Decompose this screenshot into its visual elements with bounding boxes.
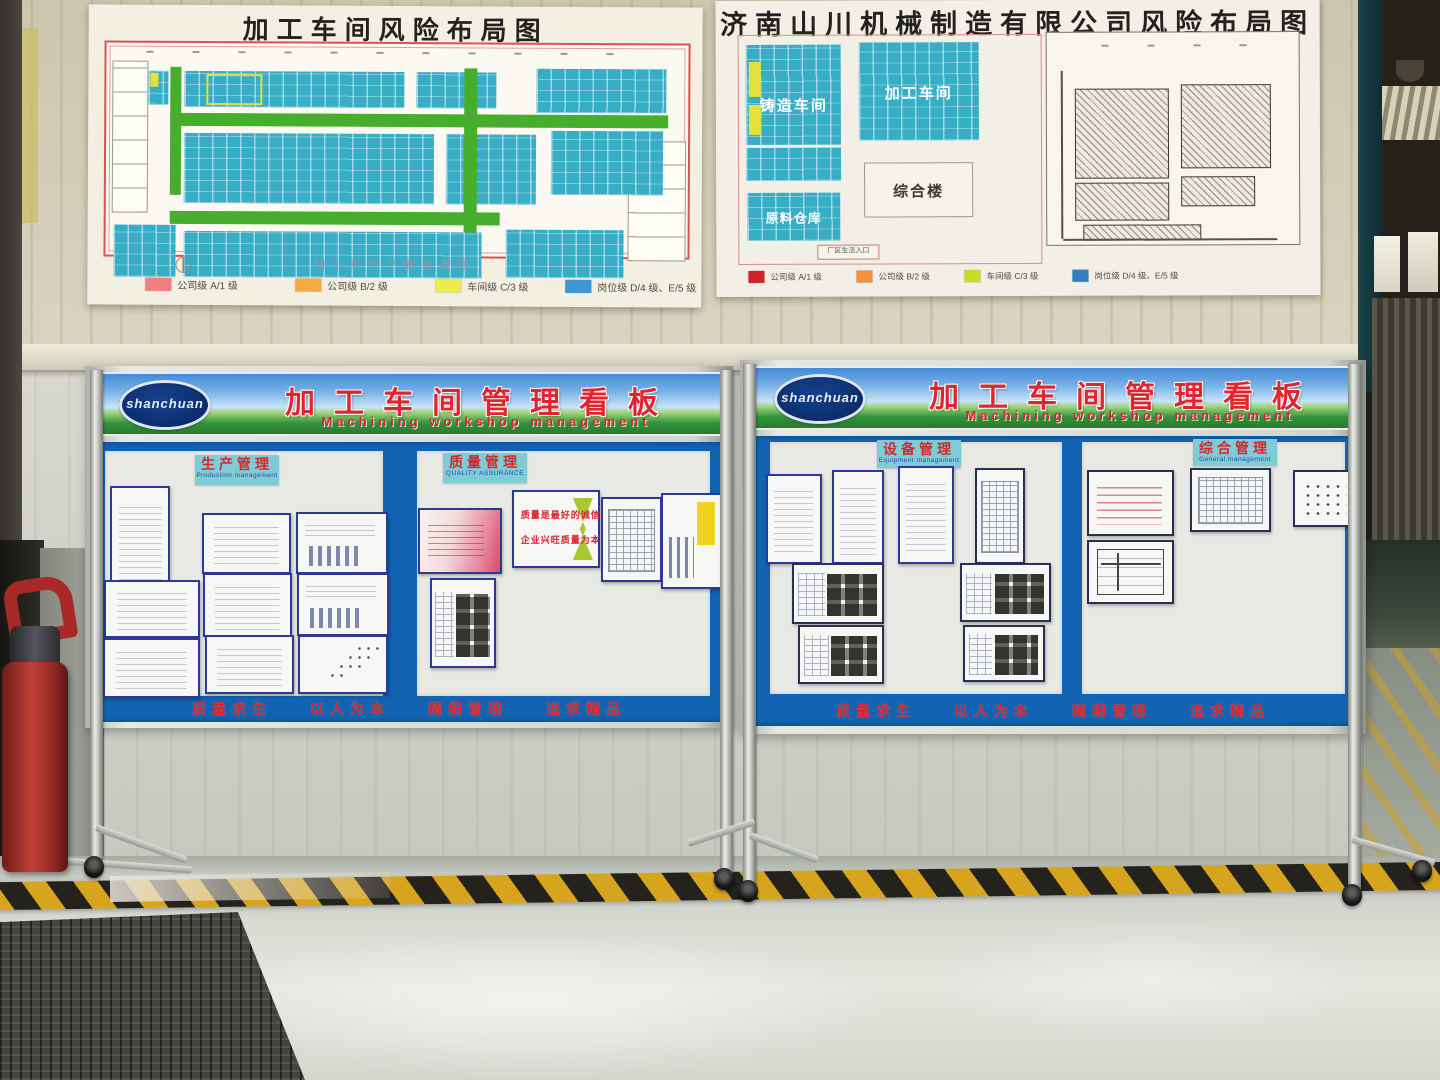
map-yellow-cell xyxy=(150,73,158,87)
slogan-phrase: 精细管理 xyxy=(1072,701,1152,721)
machine-silhouette xyxy=(1366,540,1440,652)
document-grid-table xyxy=(1190,468,1271,532)
siteplan-building xyxy=(1181,176,1255,206)
map-road xyxy=(170,113,668,129)
block-warehouse: 原料仓库 xyxy=(747,193,840,241)
document-certificate xyxy=(1087,470,1174,536)
block-divider xyxy=(746,145,841,148)
legend-label: 车间级 C/3 级 xyxy=(986,270,1038,282)
document-scatter-chart xyxy=(298,635,388,694)
section-label-en: QUALITY ASSURANCE xyxy=(443,470,527,478)
board-banner: shanchuan 加工车间管理看板 Machining workshop ma… xyxy=(746,366,1360,430)
striped-column xyxy=(1372,298,1440,542)
caster-wheel xyxy=(1412,860,1432,882)
workshop-photo: 加工车间风险布局图 加工车间平面布置图 公司级 A/1 级 xyxy=(0,0,1440,1080)
section-label-cn: 质量管理 xyxy=(443,455,527,470)
stand-leg xyxy=(1348,364,1361,892)
board-slogan: 质量求生 以人为本 精细管理 追求精品 xyxy=(101,699,717,719)
stand-leg xyxy=(743,364,756,886)
caster-wheel xyxy=(1342,884,1362,906)
document xyxy=(103,638,200,698)
legend-item: 岗位级 D/4 级、E/5 级 xyxy=(1072,269,1178,281)
window xyxy=(1374,236,1400,292)
map-rooms-left xyxy=(112,61,149,213)
document-record-sheet xyxy=(601,497,662,582)
slogan-phrase: 精细管理 xyxy=(428,699,508,719)
legend-swatch xyxy=(145,278,171,291)
map-caption: 加工车间平面布置图 xyxy=(87,254,701,274)
legend-label: 岗位级 D/4 级、E/5 级 xyxy=(597,279,696,295)
legend-item: 公司级 B/2 级 xyxy=(295,277,388,292)
legend-swatch xyxy=(856,271,872,283)
document-bar-chart xyxy=(297,573,389,636)
legend-item: 车间级 C/3 级 xyxy=(435,278,528,293)
legend-label: 公司级 B/2 级 xyxy=(327,278,388,293)
block-entrance: 厂区生活入口 xyxy=(817,244,879,259)
document-quality-slogan: 质量是最好的诚信 企业兴旺质量为本 xyxy=(512,490,600,568)
document xyxy=(202,513,291,574)
block-label: 厂区生活入口 xyxy=(818,245,878,257)
section-label-equipment: 设备管理 Equipment management xyxy=(877,440,961,468)
slogan-phrase: 以人为本 xyxy=(310,699,390,719)
map-block xyxy=(416,72,496,108)
quality-slogan-line: 企业兴旺质量为本 xyxy=(521,533,601,546)
section-label-en: Equipment management xyxy=(877,457,961,465)
hazard-reflection xyxy=(110,872,390,902)
document xyxy=(766,474,822,564)
legend-label: 岗位级 D/4 级、E/5 级 xyxy=(1094,269,1178,281)
block-machining: 加工车间 xyxy=(859,42,979,140)
lamp xyxy=(1396,60,1424,82)
section-label-en: General management xyxy=(1193,456,1277,464)
legend-item: 公司级 A/1 级 xyxy=(145,277,238,292)
legend-item: 公司级 A/1 级 xyxy=(748,271,822,283)
stand-leg xyxy=(720,370,733,876)
siteplan-ticks xyxy=(1102,44,1252,47)
document-list xyxy=(975,468,1025,564)
logo-text: shanchuan xyxy=(774,390,866,405)
document-photo-sheet xyxy=(963,625,1045,682)
logo-text: shanchuan xyxy=(119,396,211,411)
quality-slogan-line: 质量是最好的诚信 xyxy=(521,508,601,521)
wall-corner-shadow xyxy=(0,0,22,560)
map-road xyxy=(170,67,182,195)
document-layout-drawing xyxy=(1087,540,1174,604)
wall-yellow-strip xyxy=(22,28,38,223)
legend-label: 公司级 B/2 级 xyxy=(878,270,930,282)
document-photo-sheet xyxy=(792,563,884,624)
section-label-cn: 生产管理 xyxy=(195,457,279,472)
dimension-ticks xyxy=(147,51,647,56)
yellow-strip xyxy=(749,62,761,97)
banner-title-en: Machining workshop management xyxy=(251,414,721,429)
workshop-floor-marks xyxy=(1362,648,1440,874)
document xyxy=(104,580,200,638)
block-office: 综合楼 xyxy=(864,162,973,217)
green-ribbon xyxy=(573,498,593,560)
document xyxy=(205,635,294,694)
document-quality-notice xyxy=(418,508,502,574)
shanchuan-logo: shanchuan xyxy=(774,374,866,424)
floor-reflection xyxy=(940,920,1360,1040)
slogan-phrase: 以人为本 xyxy=(954,701,1034,721)
legend-swatch xyxy=(748,271,764,283)
map-block xyxy=(551,131,663,196)
legend-swatch xyxy=(435,279,461,292)
block-label: 铸造车间 xyxy=(760,95,828,116)
map-block xyxy=(184,133,434,204)
slogan-phrase: 质量求生 xyxy=(192,699,272,719)
block-label: 综合楼 xyxy=(865,180,972,201)
risk-layout-poster-company: 济南山川机械制造有限公司风险布局图 铸造车间 加工车间 综合楼 原料仓库 厂区生… xyxy=(715,0,1320,297)
legend-swatch xyxy=(565,280,591,293)
block-casting: 铸造车间 xyxy=(746,45,841,181)
document xyxy=(898,466,954,564)
caster-wheel xyxy=(738,880,758,902)
section-label-quality: 质量管理 QUALITY ASSURANCE xyxy=(443,453,527,483)
siteplan-road xyxy=(1061,71,1063,239)
section-label-cn: 设备管理 xyxy=(877,442,961,457)
document xyxy=(832,470,884,564)
map-road xyxy=(170,211,500,226)
document xyxy=(203,573,292,637)
siteplan-building xyxy=(1075,182,1169,220)
legend-swatch xyxy=(295,278,321,291)
document-photo-sheet xyxy=(960,563,1051,622)
floorplan-map xyxy=(103,40,690,259)
slogan-phrase: 质量求生 xyxy=(836,701,916,721)
legend-label: 公司级 A/1 级 xyxy=(177,277,238,292)
document-bar-chart xyxy=(296,512,388,574)
section-label-production: 生产管理 Production management xyxy=(195,455,279,485)
board-banner: shanchuan 加工车间管理看板 Machining workshop ma… xyxy=(91,372,727,436)
site-plan-drawing xyxy=(1046,31,1301,246)
kanban-board-right: shanchuan 加工车间管理看板 Machining workshop ma… xyxy=(740,360,1366,734)
legend-label: 公司级 A/1 级 xyxy=(770,271,822,283)
legend-label: 车间级 C/3 级 xyxy=(467,278,528,293)
window xyxy=(1408,232,1438,292)
legend-swatch xyxy=(964,270,980,282)
siteplan-building xyxy=(1075,88,1169,178)
document-chart-highlight xyxy=(661,493,724,589)
roof-band xyxy=(1382,86,1440,140)
legend-swatch xyxy=(1072,270,1088,282)
block-label: 原料仓库 xyxy=(747,208,840,227)
fire-extinguisher xyxy=(2,662,68,872)
section-label-general: 综合管理 General management xyxy=(1193,439,1277,466)
slogan-phrase: 追求精品 xyxy=(546,699,626,719)
document-photo-sheet xyxy=(798,625,884,684)
map-block xyxy=(536,69,666,114)
legend-item: 公司级 B/2 级 xyxy=(856,270,930,282)
slogan-phrase: 追求精品 xyxy=(1190,701,1270,721)
shanchuan-logo: shanchuan xyxy=(119,380,211,430)
map-block xyxy=(446,134,536,204)
block-label: 加工车间 xyxy=(859,82,979,103)
siteplan-building xyxy=(1181,84,1271,168)
stand-leg xyxy=(90,370,103,864)
banner-title-en: Machining workshop management xyxy=(906,408,1354,423)
map-highlight-box xyxy=(206,74,262,105)
caster-wheel xyxy=(84,856,104,878)
risk-layout-poster-workshop: 加工车间风险布局图 加工车间平面布置图 公司级 A/1 级 xyxy=(87,4,703,307)
legend-item: 岗位级 D/4 级、E/5 级 xyxy=(565,279,696,295)
section-label-cn: 综合管理 xyxy=(1193,441,1277,456)
caster-wheel xyxy=(714,868,734,890)
kanban-board-left: shanchuan 加工车间管理看板 Machining workshop ma… xyxy=(85,366,733,728)
board-slogan: 质量求生 以人为本 精细管理 追求精品 xyxy=(756,701,1350,721)
section-label-en: Production management xyxy=(195,472,279,480)
legend-item: 车间级 C/3 级 xyxy=(964,270,1038,282)
document-photo-sheet xyxy=(430,578,496,668)
